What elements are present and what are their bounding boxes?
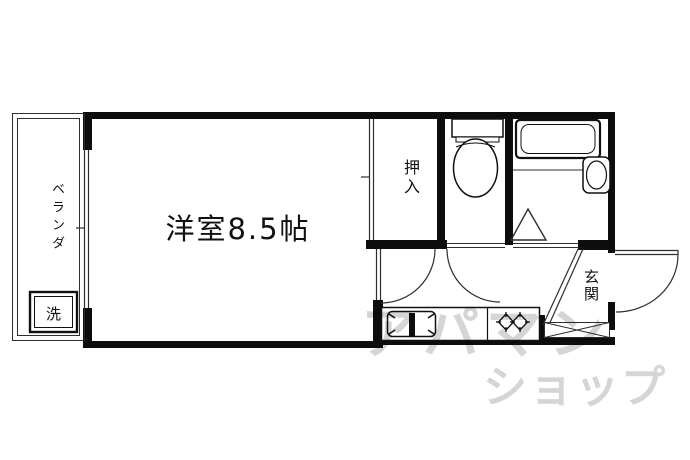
- closet-label: 押入: [398, 159, 422, 197]
- wall-top: [83, 112, 615, 119]
- wall-closet-right: [437, 119, 445, 240]
- room-door-swing: [377, 249, 436, 303]
- entrance-label: 玄関: [581, 269, 602, 303]
- wall-closet-bottom: [366, 240, 447, 249]
- entrance-mat: [545, 323, 610, 338]
- wall-bottom-main: [83, 341, 383, 348]
- floorplan-canvas: 洋室8.5帖 押入 玄関 ベランダ 洗 アパマン ショップ: [0, 0, 690, 460]
- toilet-icon: [452, 119, 503, 197]
- veranda-label: ベランダ: [47, 182, 66, 254]
- closet-sliding-door: [361, 119, 374, 240]
- wall-genkan-top: [578, 240, 615, 250]
- wash-basin-icon: [583, 157, 610, 193]
- washing-machine-label: 洗: [30, 303, 77, 324]
- wall-toilet-bath-divider: [505, 119, 513, 245]
- genkan-step-diagonal: [543, 247, 583, 327]
- veranda-sliding-door: [76, 150, 89, 308]
- bath-folding-door-icon: [511, 209, 546, 240]
- wall-step-bottom: [536, 337, 615, 345]
- entrance-door-icon: [615, 250, 678, 312]
- main-room-label: 洋室8.5帖: [128, 206, 348, 248]
- toilet-door-swing: [447, 249, 500, 302]
- bathtub-icon: [516, 120, 600, 158]
